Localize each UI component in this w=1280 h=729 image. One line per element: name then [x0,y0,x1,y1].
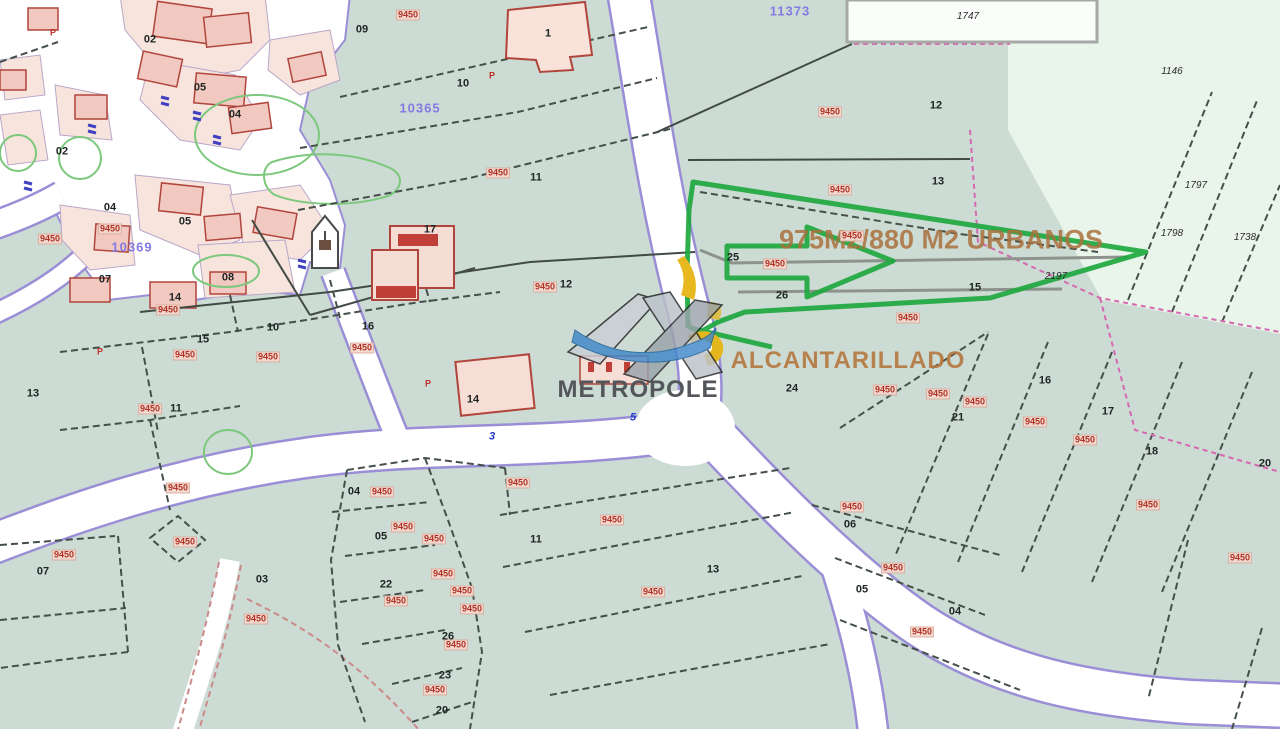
parcel-number: 12 [560,280,572,291]
zone-label: 9450 [450,586,474,597]
parcel-number: 23 [439,671,451,682]
ref-number: 1747 [957,12,979,22]
zone-label: 9450 [431,569,455,580]
zone-label: 9450 [244,614,268,625]
zone-label: 9450 [173,537,197,548]
parcel-number: 12 [930,101,942,112]
parcel-number: 25 [727,253,739,264]
zone-label: 9450 [818,107,842,118]
zone-label: 9450 [1073,435,1097,446]
zone-label: 9450 [641,587,665,598]
zone-label: 9450 [926,389,950,400]
parcel-number: 17 [1102,407,1114,418]
parcel-number: 1 [545,29,551,40]
zone-label: 9450 [506,478,530,489]
parcel-number: 14 [169,293,181,304]
zone-label: 9450 [896,313,920,324]
zone-label: 9450 [422,534,446,545]
parcel-number: 07 [37,567,49,578]
parcel-number: 13 [27,389,39,400]
parcel-number: 26 [776,291,788,302]
zone-label: 9450 [156,305,180,316]
parcel-number: 17 [424,225,436,236]
marker-letter: P [425,380,431,389]
parcel-number: 20 [436,706,448,717]
parcel-number: 15 [197,335,209,346]
zone-label: 9450 [763,259,787,270]
zone-label: 9450 [423,685,447,696]
parcel-number: 24 [786,384,798,395]
watermark-text: METROPOLE [557,378,718,402]
parcel-number: 05 [375,532,387,543]
marker-letter: P [489,72,495,81]
zone-label: 9450 [350,343,374,354]
zone-label: 9450 [173,350,197,361]
road-number: 3 [489,432,495,443]
parcel-number: 04 [949,607,961,618]
parcel-number: 16 [1039,376,1051,387]
zone-code: 10365 [399,102,440,115]
parcel-number: 13 [932,177,944,188]
zone-label: 9450 [384,596,408,607]
parcel-number: 16 [362,322,374,333]
parcel-number: 11 [170,404,182,415]
zone-code: 10369 [111,241,152,254]
marker-letter: P [50,29,56,38]
zone-label: 9450 [840,502,864,513]
parcel-number: 09 [356,25,368,36]
zone-label: 9450 [166,483,190,494]
map-labels: 975M2/880 M2 URBANOS ALCANTARILLADO METR… [0,0,1280,729]
parcel-number: 15 [969,283,981,294]
parcel-number: 05 [179,217,191,228]
parcel-number: 20 [1259,459,1271,470]
parcel-number: 11 [530,535,542,546]
zone-label: 9450 [460,604,484,615]
parcel-number: 11 [530,173,542,184]
zone-label: 9450 [52,550,76,561]
zone-label: 9450 [910,627,934,638]
parcel-number: 02 [56,147,68,158]
parcel-number: 02 [144,35,156,46]
utility-annotation: ALCANTARILLADO [731,349,966,373]
parcel-number: 13 [707,565,719,576]
zone-label: 9450 [600,515,624,526]
parcel-number: 05 [856,585,868,596]
zone-label: 9450 [828,185,852,196]
parcel-number: 06 [844,520,856,531]
ref-number: 1738 [1234,233,1256,243]
zone-label: 9450 [1023,417,1047,428]
road-number: 5 [630,413,636,424]
zone-label: 9450 [840,231,864,242]
parcel-number: 21 [952,413,964,424]
zone-label: 9450 [533,282,557,293]
marker-letter: P [97,348,103,357]
zone-label: 9450 [370,487,394,498]
parcel-number: 04 [348,487,360,498]
parcel-number: 08 [222,273,234,284]
cadastral-map[interactable]: 975M2/880 M2 URBANOS ALCANTARILLADO METR… [0,0,1280,729]
ref-number: 1797 [1185,181,1207,191]
parcel-number: 07 [99,275,111,286]
zone-label: 9450 [38,234,62,245]
zone-label: 9450 [881,563,905,574]
zone-label: 9450 [256,352,280,363]
parcel-number: 18 [1146,447,1158,458]
zone-label: 9450 [873,385,897,396]
parcel-number: 22 [380,580,392,591]
parcel-number: 05 [194,83,206,94]
ref-number: 1146 [1161,67,1183,77]
ref-number: 2197 [1045,272,1067,282]
parcel-number: 04 [104,203,116,214]
parcel-number: 10 [457,79,469,90]
ref-number: 1798 [1161,229,1183,239]
zone-code: 11373 [770,5,810,18]
zone-label: 9450 [138,404,162,415]
area-annotation: 975M2/880 M2 URBANOS [779,227,1103,254]
parcel-number: 10 [267,323,279,334]
parcel-number: 03 [256,575,268,586]
zone-label: 9450 [1228,553,1252,564]
parcel-number: 14 [467,395,479,406]
zone-label: 9450 [98,224,122,235]
zone-label: 9450 [1136,500,1160,511]
zone-label: 9450 [486,168,510,179]
zone-label: 9450 [444,640,468,651]
zone-label: 9450 [963,397,987,408]
zone-label: 9450 [396,10,420,21]
parcel-number: 04 [229,110,241,121]
zone-label: 9450 [391,522,415,533]
